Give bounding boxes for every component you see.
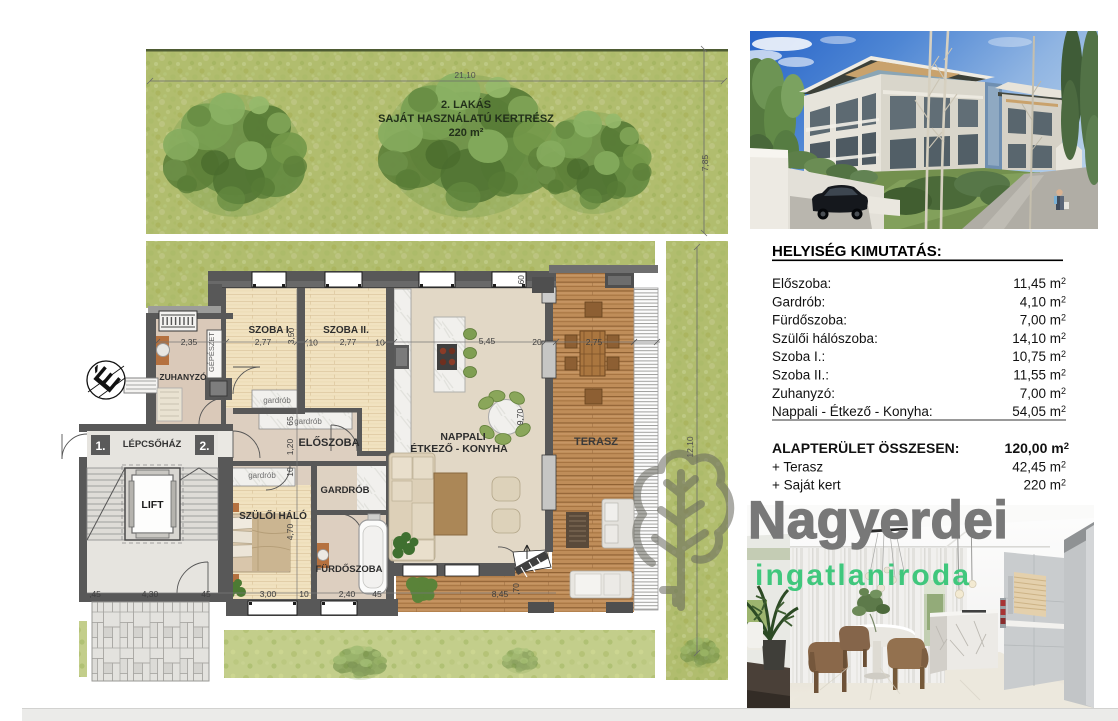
svg-text:220 m²: 220 m² — [449, 127, 484, 139]
svg-text:ingatlaniroda: ingatlaniroda — [755, 559, 969, 592]
svg-text:HELYISÉG KIMUTATÁS:: HELYISÉG KIMUTATÁS: — [772, 243, 942, 260]
svg-text:Előszoba:: Előszoba: — [772, 276, 831, 291]
svg-text:120,00 m2: 120,00 m2 — [1005, 440, 1069, 456]
svg-text:GARDRÓB: GARDRÓB — [320, 484, 369, 496]
svg-text:Zuhanyzó:: Zuhanyzó: — [772, 386, 835, 401]
svg-text:Szoba II.:: Szoba II.: — [772, 368, 829, 383]
svg-text:LIFT: LIFT — [141, 499, 164, 511]
svg-text:Szoba I.:: Szoba I.: — [772, 349, 825, 364]
svg-text:ÉTKEZŐ - KONYHA: ÉTKEZŐ - KONYHA — [410, 442, 508, 455]
svg-text:gardrób: gardrób — [263, 396, 291, 405]
svg-text:11,45 m2: 11,45 m2 — [1013, 276, 1066, 291]
svg-text:SAJÁT HASZNÁLATÚ KERTRÉSZ: SAJÁT HASZNÁLATÚ KERTRÉSZ — [378, 112, 554, 125]
svg-text:2. LAKÁS: 2. LAKÁS — [441, 98, 491, 111]
svg-text:4,70: 4,70 — [285, 523, 295, 540]
svg-text:7,85: 7,85 — [700, 154, 710, 171]
svg-text:,70: ,70 — [511, 583, 521, 595]
svg-text:TERASZ: TERASZ — [574, 436, 618, 448]
svg-text:2,77: 2,77 — [340, 337, 357, 347]
svg-text:ZUHANYZÓ: ZUHANYZÓ — [159, 371, 207, 382]
svg-text:10: 10 — [375, 338, 385, 348]
svg-text:4,10 m2: 4,10 m2 — [1020, 294, 1066, 309]
svg-text:7,00 m2: 7,00 m2 — [1020, 386, 1066, 401]
svg-text:GÉPÉSZET: GÉPÉSZET — [207, 332, 216, 372]
svg-text:45: 45 — [201, 589, 211, 599]
svg-text:2,75: 2,75 — [586, 337, 603, 347]
svg-text:Fürdőszoba:: Fürdőszoba: — [772, 313, 847, 328]
svg-text:220 m2: 220 m2 — [1023, 478, 1066, 493]
svg-text:3,00: 3,00 — [260, 589, 277, 599]
svg-text:2.: 2. — [199, 439, 209, 453]
svg-text:10,75 m2: 10,75 m2 — [1012, 349, 1066, 364]
svg-text:14,10 m2: 14,10 m2 — [1012, 331, 1066, 346]
svg-text:54,05 m2: 54,05 m2 — [1012, 404, 1066, 419]
svg-text:Nagyerdei: Nagyerdei — [748, 491, 1008, 550]
svg-text:ALAPTERÜLET ÖSSZESEN:: ALAPTERÜLET ÖSSZESEN: — [772, 440, 959, 456]
svg-text:+ Terasz: + Terasz — [772, 459, 823, 474]
svg-text:FÜRDŐSZOBA: FÜRDŐSZOBA — [315, 563, 382, 575]
svg-text:8,45: 8,45 — [492, 589, 509, 599]
svg-text:42,45 m2: 42,45 m2 — [1012, 459, 1066, 474]
svg-text:2,40: 2,40 — [339, 589, 356, 599]
svg-text:2,35: 2,35 — [181, 337, 198, 347]
svg-text:9,70: 9,70 — [515, 408, 525, 425]
svg-text:ELŐSZOBA: ELŐSZOBA — [298, 436, 359, 449]
svg-text:SZOBA II.: SZOBA II. — [323, 325, 369, 336]
svg-text:1.: 1. — [95, 439, 105, 453]
svg-text:10: 10 — [285, 467, 295, 477]
svg-text:2,77: 2,77 — [255, 337, 272, 347]
svg-text:20: 20 — [532, 337, 542, 347]
svg-text:1,20: 1,20 — [285, 438, 295, 455]
svg-text:,10: ,10 — [306, 338, 318, 348]
svg-text:11,55 m2: 11,55 m2 — [1013, 368, 1066, 383]
svg-text:SZOBA I.: SZOBA I. — [249, 325, 292, 336]
svg-text:7,00 m2: 7,00 m2 — [1020, 313, 1066, 328]
svg-text:Szülői hálószoba:: Szülői hálószoba: — [772, 331, 878, 346]
svg-text:NAPPALI: NAPPALI — [440, 431, 485, 443]
svg-text:,45: ,45 — [89, 589, 101, 599]
svg-text:45: 45 — [372, 589, 382, 599]
svg-text:gardrób: gardrób — [248, 471, 276, 480]
svg-text:Gardrób:: Gardrób: — [772, 294, 825, 309]
svg-text:gardrób: gardrób — [294, 417, 322, 426]
svg-text:Nappali - Étkező - Konyha:: Nappali - Étkező - Konyha: — [772, 404, 933, 419]
svg-text:5,45: 5,45 — [479, 336, 496, 346]
svg-text:21,10: 21,10 — [454, 70, 476, 80]
svg-text:10: 10 — [299, 589, 309, 599]
svg-text:4,30: 4,30 — [142, 589, 159, 599]
svg-text:,60: ,60 — [516, 275, 526, 287]
svg-text:SZÜLŐI HÁLÓ: SZÜLŐI HÁLÓ — [239, 509, 307, 522]
svg-text:LÉPCSŐHÁZ: LÉPCSŐHÁZ — [123, 438, 182, 450]
